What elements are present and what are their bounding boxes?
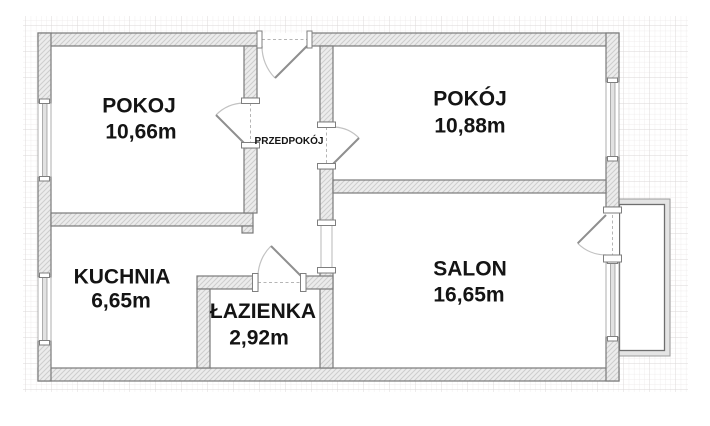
wall-hall-left-upper [244, 46, 257, 98]
window-salon [606, 259, 619, 341]
floorplan-page: POKOJ 10,66m POKÓJ 10,88m PRZEDPOKÓJ KUC… [0, 0, 710, 426]
wall-pokoj-salon [333, 180, 606, 193]
room-label-salon: SALON [433, 258, 507, 281]
floorplan-canvas: POKOJ 10,66m POKÓJ 10,88m PRZEDPOKÓJ KUC… [0, 0, 710, 426]
wall-left-upper [38, 33, 51, 103]
room-label-przedpokoj: PRZEDPOKÓJ [255, 134, 324, 147]
window-kuchnia [38, 273, 51, 345]
balcony [614, 199, 670, 356]
wall-lazienka-left [197, 289, 210, 368]
wall-right-lower [606, 337, 619, 381]
wall-top-left-segment [38, 33, 262, 46]
wall-left-middle [38, 177, 51, 277]
room-label-lazienka: ŁAZIENKA [210, 300, 316, 323]
window-pokoj-right [606, 78, 619, 161]
room-area-kuchnia: 6,65m [91, 290, 151, 313]
room-area-salon: 16,65m [433, 284, 504, 307]
wall-right-upper [606, 33, 619, 82]
room-area-pokoj-right: 10,88m [434, 115, 505, 138]
wall-bottom [38, 368, 619, 381]
wall-hall-right-middle [320, 169, 333, 225]
wall-pokoj-kuchnia-endcap [242, 226, 253, 233]
wall-right-middle [606, 157, 619, 207]
wall-pokoj-kuchnia [51, 213, 253, 226]
wall-hall-left-lower [244, 148, 257, 213]
room-label-kuchnia: KUCHNIA [74, 266, 171, 289]
wall-lazienka-top-left [197, 276, 258, 289]
wall-hall-right-upper [320, 46, 333, 122]
window-pokoj-left [38, 99, 51, 181]
balcony-floor [620, 205, 665, 351]
wall-left-lower [38, 341, 51, 381]
room-area-lazienka: 2,92m [229, 327, 289, 350]
room-area-pokoj-left: 10,66m [105, 121, 176, 144]
room-label-pokoj-right: POKÓJ [433, 87, 507, 111]
room-label-pokoj-left: POKOJ [102, 95, 176, 118]
wall-top-right-segment [307, 33, 619, 46]
